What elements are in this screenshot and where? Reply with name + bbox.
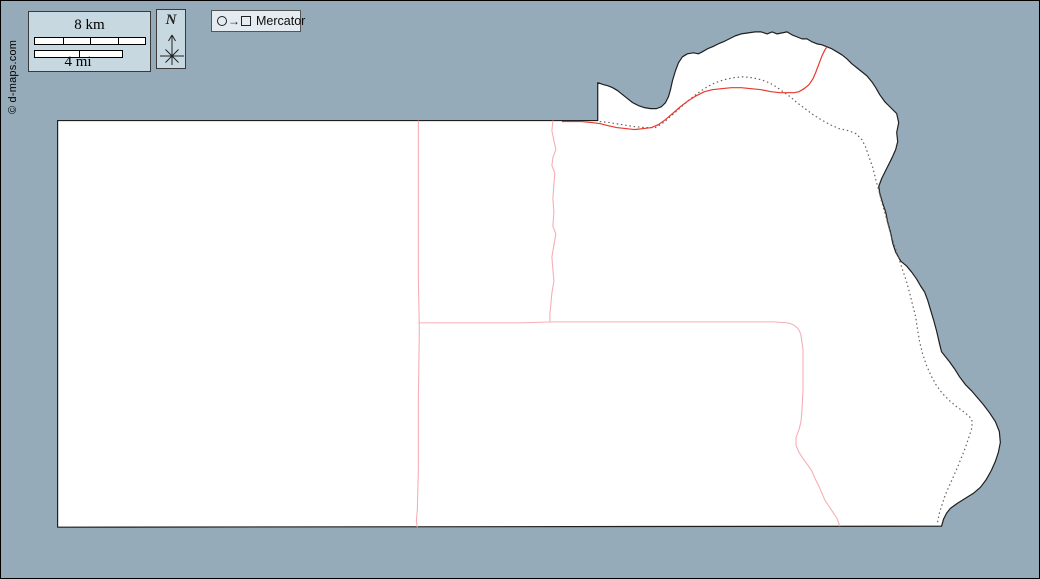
- credit-text: © d-maps.com: [7, 40, 19, 114]
- scale-bar-panel: 8 km 4 mi: [28, 11, 151, 72]
- projection-legend: → Mercator: [211, 10, 301, 32]
- projection-label: Mercator: [256, 14, 305, 28]
- scale-mi-label: 4 mi: [34, 55, 122, 70]
- map-canvas: © d-maps.com 8 km 4 mi N: [0, 0, 1040, 579]
- scale-tick: [63, 38, 64, 44]
- north-label: N: [157, 13, 185, 28]
- scale-tick: [118, 38, 119, 44]
- scale-km-label: 8 km: [29, 18, 150, 33]
- north-arrow-icon: [157, 30, 187, 70]
- compass-panel: N: [156, 9, 186, 69]
- circle-icon: [217, 16, 227, 26]
- scale-bar-km: [34, 37, 146, 45]
- projection-arrow-icon: →: [228, 16, 240, 26]
- map-image: [1, 1, 1039, 578]
- square-icon: [241, 16, 251, 26]
- scale-tick: [90, 38, 91, 44]
